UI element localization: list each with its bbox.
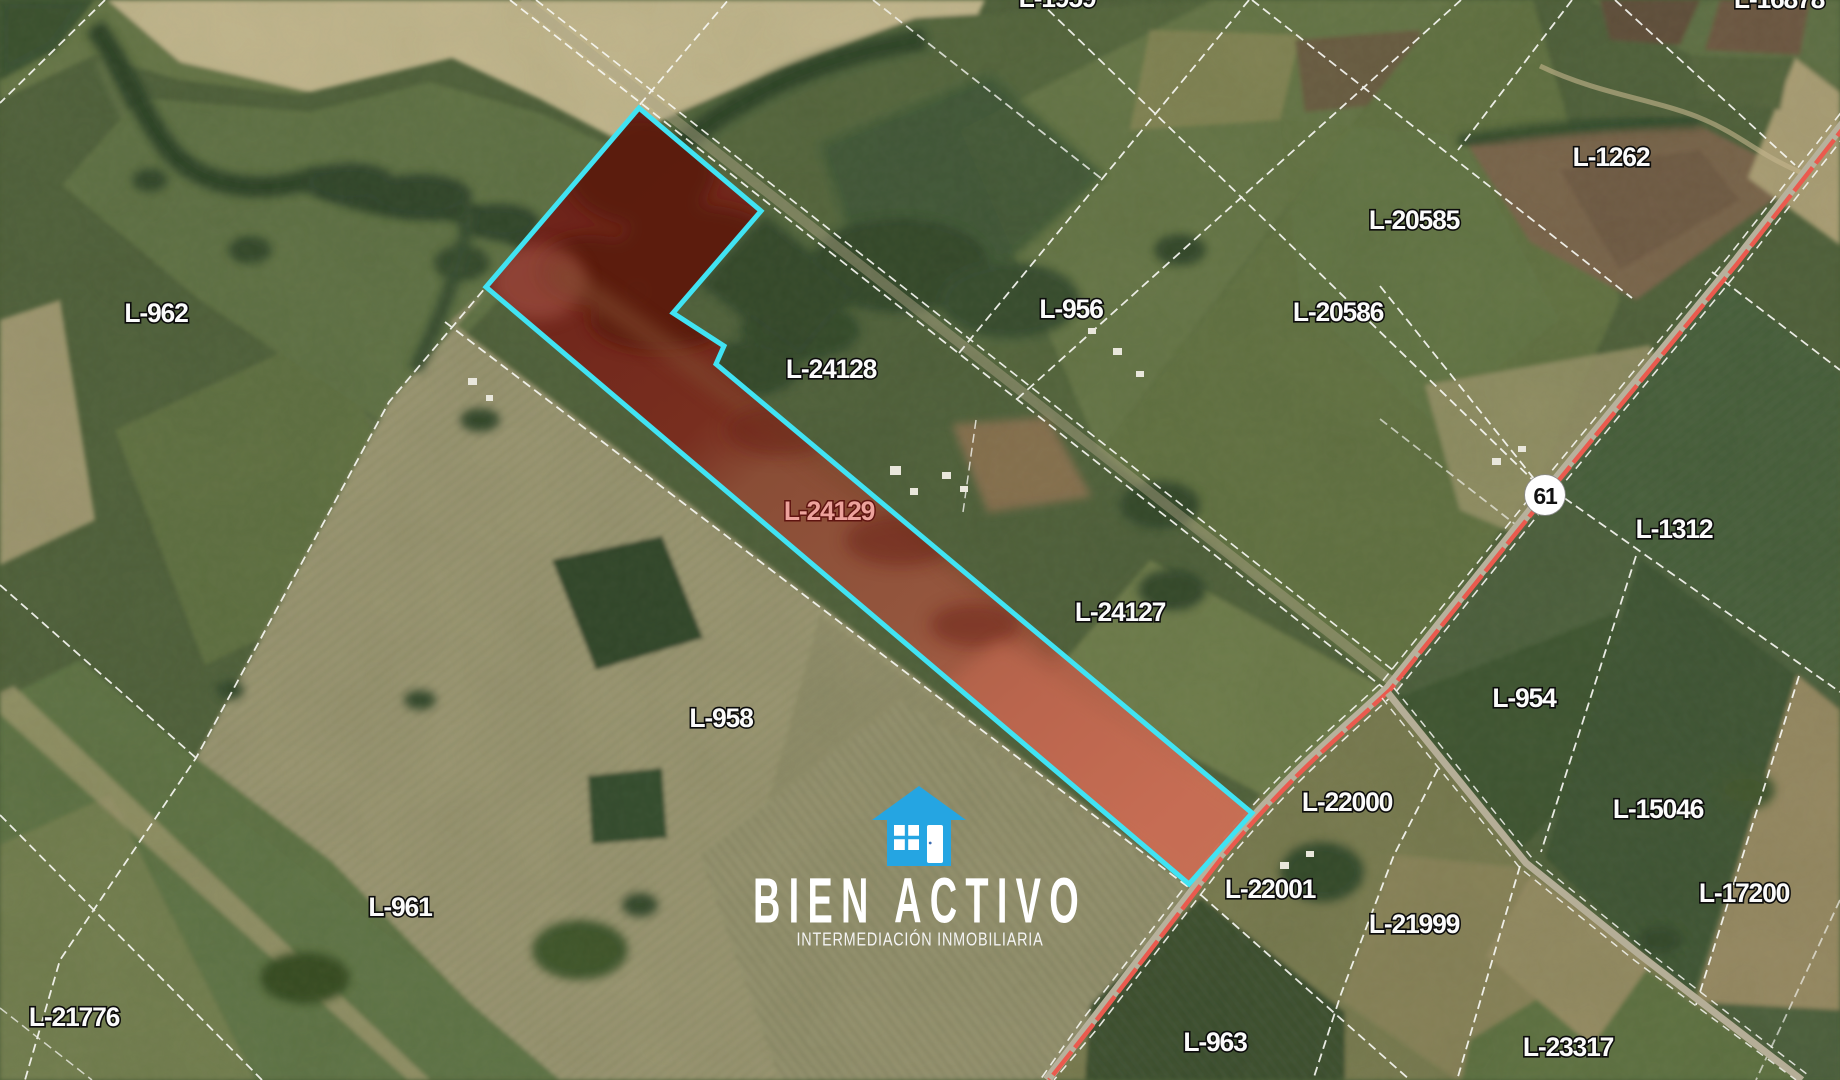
svg-text:61: 61 <box>1533 483 1558 509</box>
svg-text:L-24129: L-24129 <box>784 496 875 526</box>
svg-text:L-21999: L-21999 <box>1369 909 1460 939</box>
svg-text:L-963: L-963 <box>1183 1027 1247 1057</box>
svg-text:L-20585: L-20585 <box>1369 205 1460 235</box>
svg-text:L-961: L-961 <box>368 892 432 922</box>
svg-text:L-1959: L-1959 <box>1019 0 1096 13</box>
svg-text:L-23317: L-23317 <box>1523 1032 1614 1062</box>
svg-text:L-22000: L-22000 <box>1302 787 1393 817</box>
svg-text:INTERMEDIACIÓN INMOBILIARIA: INTERMEDIACIÓN INMOBILIARIA <box>797 929 1044 950</box>
svg-text:L-20586: L-20586 <box>1293 297 1384 327</box>
svg-text:L-22001: L-22001 <box>1225 874 1316 904</box>
svg-text:L-24127: L-24127 <box>1075 597 1166 627</box>
svg-text:L-962: L-962 <box>124 298 188 328</box>
svg-text:L-15046: L-15046 <box>1613 794 1704 824</box>
svg-text:L-958: L-958 <box>689 703 753 733</box>
svg-text:L-24128: L-24128 <box>786 354 877 384</box>
svg-text:L-954: L-954 <box>1492 683 1557 713</box>
svg-text:L-1262: L-1262 <box>1573 142 1650 172</box>
svg-text:L-956: L-956 <box>1039 294 1103 324</box>
svg-text:L-21776: L-21776 <box>29 1002 120 1032</box>
svg-text:L-17200: L-17200 <box>1699 878 1790 908</box>
svg-text:BIEN ACTIVO: BIEN ACTIVO <box>753 865 1087 937</box>
svg-text:L-1312: L-1312 <box>1636 514 1713 544</box>
svg-text:L-16878: L-16878 <box>1734 0 1825 14</box>
